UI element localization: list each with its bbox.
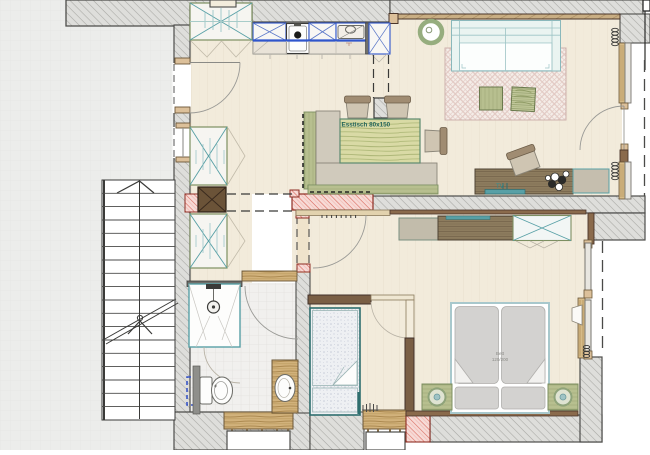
svg-text:TV: TV [496,184,504,190]
svg-text:120/200: 120/200 [492,357,509,362]
svg-text:Bett: Bett [496,351,505,356]
svg-text:Esstisch 80x150: Esstisch 80x150 [342,122,391,129]
